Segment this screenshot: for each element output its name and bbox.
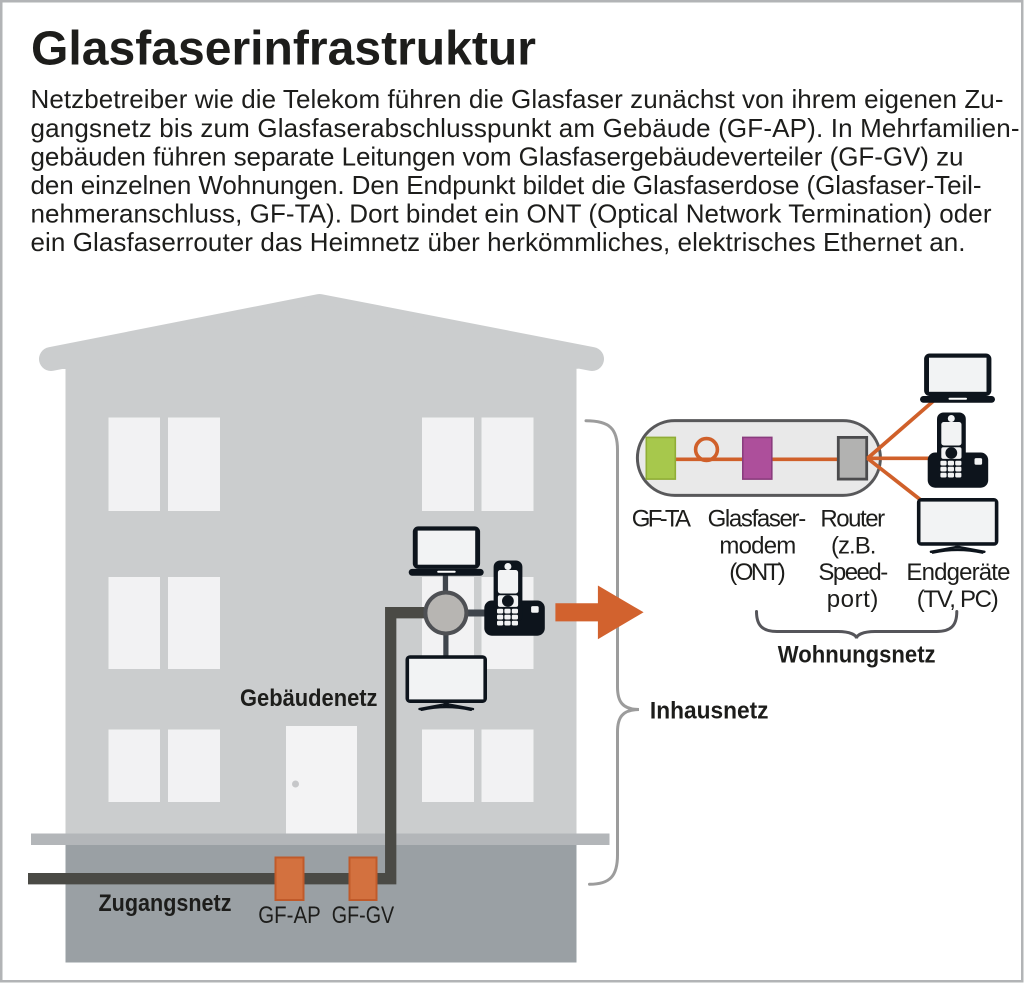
svg-text:gangsnetz bis zum Glasfaserabs: gangsnetz bis zum Glasfaserabschlusspunk…: [31, 113, 1020, 143]
svg-text:GF-TA: GF-TA: [632, 506, 691, 533]
svg-text:ein Glasfaserrouter das Heimne: ein Glasfaserrouter das Heimnetz über he…: [31, 227, 966, 257]
svg-text:Inhausnetz: Inhausnetz: [650, 697, 769, 724]
svg-text:(z.B.: (z.B.: [831, 532, 876, 559]
svg-text:Router: Router: [820, 506, 885, 533]
svg-text:Glasfaserinfrastruktur: Glasfaserinfrastruktur: [31, 23, 536, 76]
svg-text:nehmeranschluss, GF-TA). Dort: nehmeranschluss, GF-TA). Dort bindet ein…: [31, 199, 992, 229]
svg-text:den einzelnen Wohnungen. Den E: den einzelnen Wohnungen. Den Endpunkt bi…: [31, 170, 982, 200]
svg-text:(TV, PC): (TV, PC): [917, 586, 999, 613]
svg-text:Speed-: Speed-: [818, 559, 888, 586]
svg-text:modem: modem: [719, 532, 796, 559]
svg-text:gebäuden führen separate Leitu: gebäuden führen separate Leitungen vom G…: [31, 141, 964, 171]
svg-text:Wohnungsnetz: Wohnungsnetz: [778, 642, 936, 669]
svg-text:Netzbetreiber wie die Telekom: Netzbetreiber wie die Telekom führen die…: [31, 84, 1004, 114]
svg-text:Gebäudenetz: Gebäudenetz: [240, 685, 378, 712]
svg-text:(ONT): (ONT): [729, 559, 785, 586]
svg-text:port): port): [827, 586, 879, 613]
svg-text:Zugangsnetz: Zugangsnetz: [99, 890, 232, 917]
svg-text:GF-AP: GF-AP: [258, 902, 320, 929]
svg-text:Glasfaser-: Glasfaser-: [708, 506, 807, 533]
svg-text:Endgeräte: Endgeräte: [906, 559, 1010, 586]
svg-text:GF-GV: GF-GV: [332, 902, 394, 929]
